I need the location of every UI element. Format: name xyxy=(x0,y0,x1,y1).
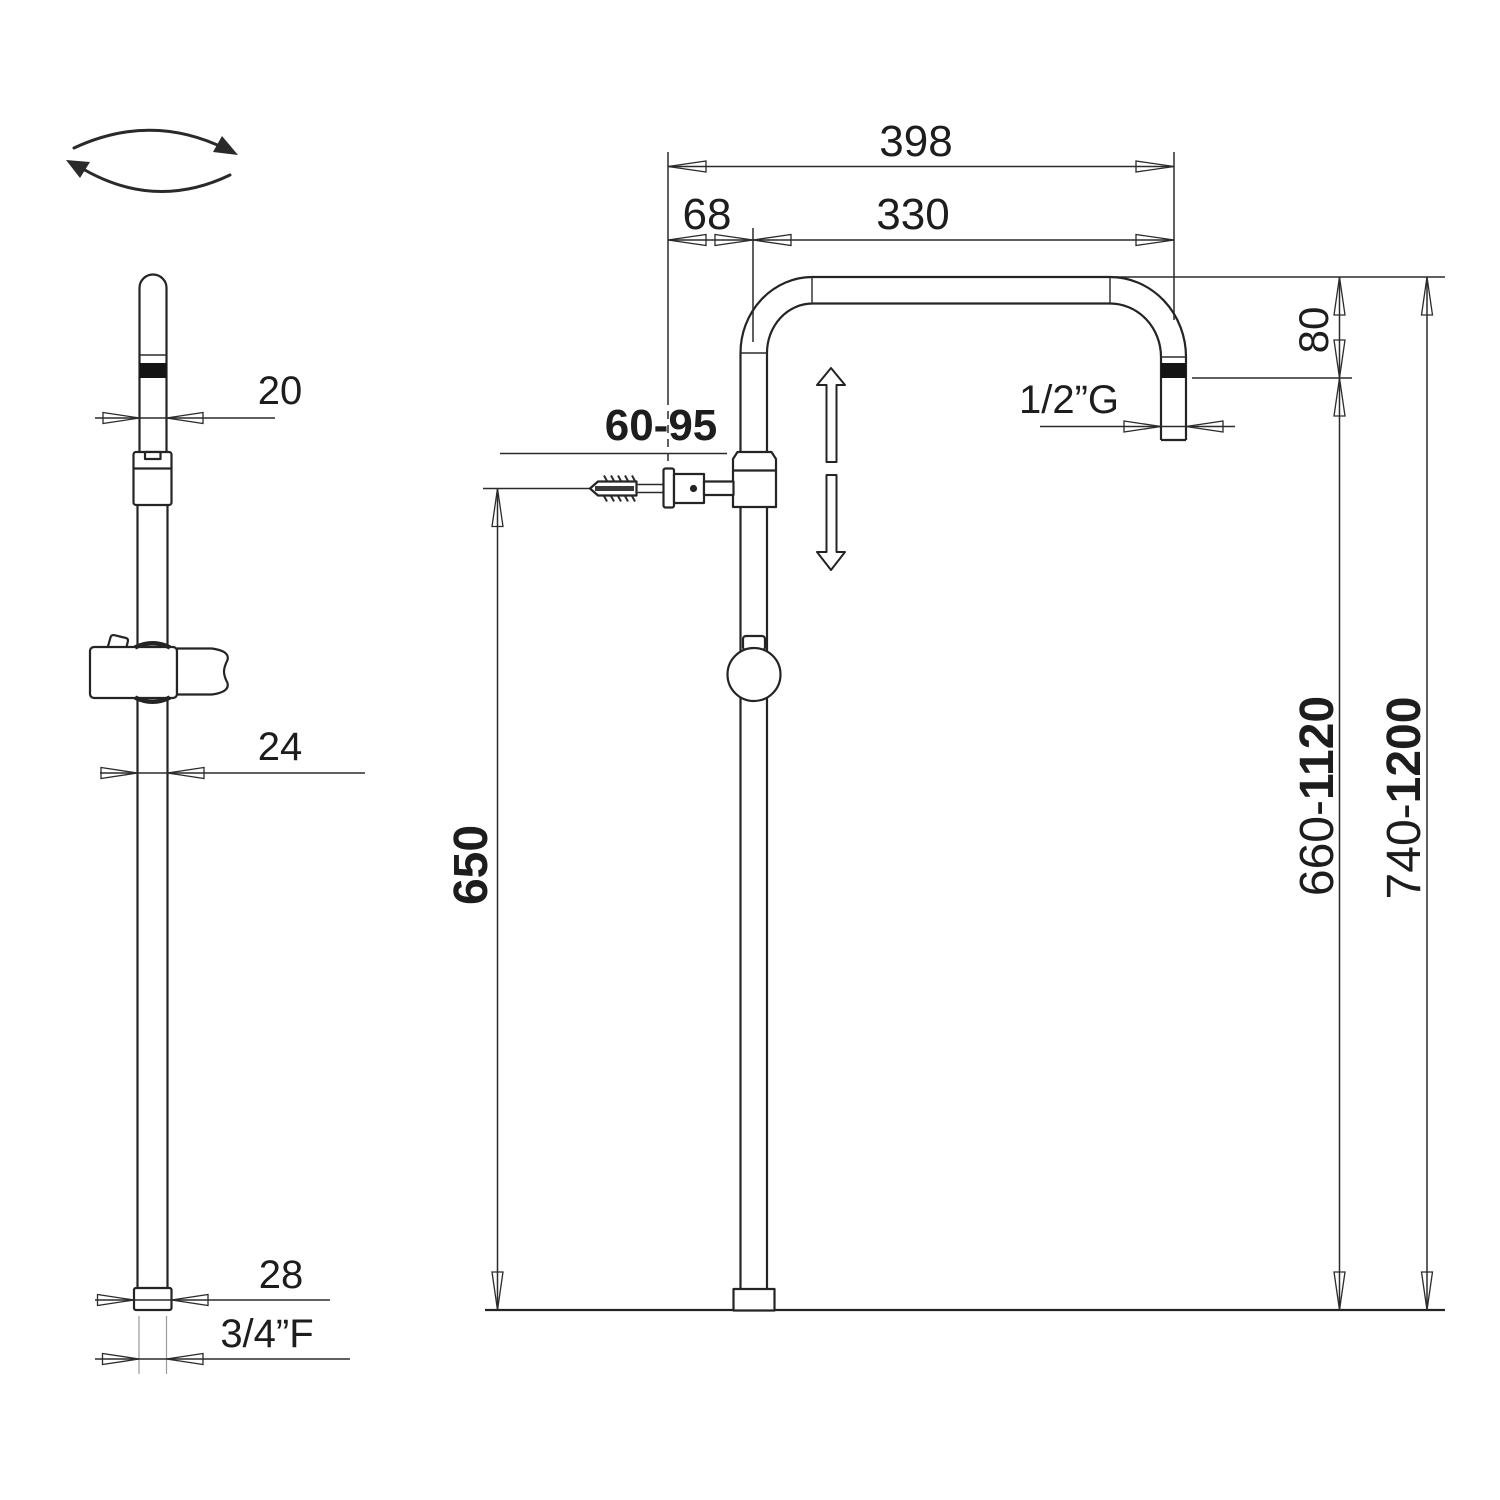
dim-pole-diameter: 24 xyxy=(258,725,303,769)
dim-arm-offset: 68 xyxy=(683,190,732,239)
dim-head-diameter: 20 xyxy=(258,369,303,413)
arm-outlet-black-band xyxy=(1161,363,1186,378)
dim-head-thread: 1/2”G xyxy=(1019,378,1119,422)
wall-bracket xyxy=(590,469,734,508)
slider-handle xyxy=(90,635,228,702)
technical-drawing-canvas: 20 24 28 3/4”F xyxy=(0,0,1500,1500)
dim-base-diameter: 28 xyxy=(259,1253,304,1297)
side-view-dimensions: 20 24 28 3/4”F xyxy=(95,369,365,1365)
up-down-adjust-arrows-icon xyxy=(817,368,845,570)
handshower-black-band xyxy=(140,363,167,378)
shower-column-drawing: 20 24 28 3/4”F xyxy=(0,0,1500,1500)
front-view-dimensions: 398 68 330 1/2”G 60-95 80 660-1120 740-1… xyxy=(445,117,1433,1310)
pole-end-cap xyxy=(134,1288,172,1310)
dim-total-height: 740-1200 xyxy=(1378,697,1431,900)
rotation-icon xyxy=(66,130,238,191)
dim-overall-width: 398 xyxy=(879,117,952,166)
column-base-cap xyxy=(734,1289,775,1311)
dim-base-thread: 3/4”F xyxy=(220,1312,313,1356)
side-view xyxy=(90,275,228,1375)
dim-arm-reach: 330 xyxy=(876,190,949,239)
dim-riser-height: 660-1120 xyxy=(1291,696,1344,896)
diverter-knob xyxy=(728,636,781,701)
dim-drop-height: 80 xyxy=(1290,307,1337,354)
dim-lower-height: 650 xyxy=(445,825,498,905)
column-top-connector xyxy=(733,452,776,507)
dim-bracket-range: 60-95 xyxy=(605,401,718,450)
